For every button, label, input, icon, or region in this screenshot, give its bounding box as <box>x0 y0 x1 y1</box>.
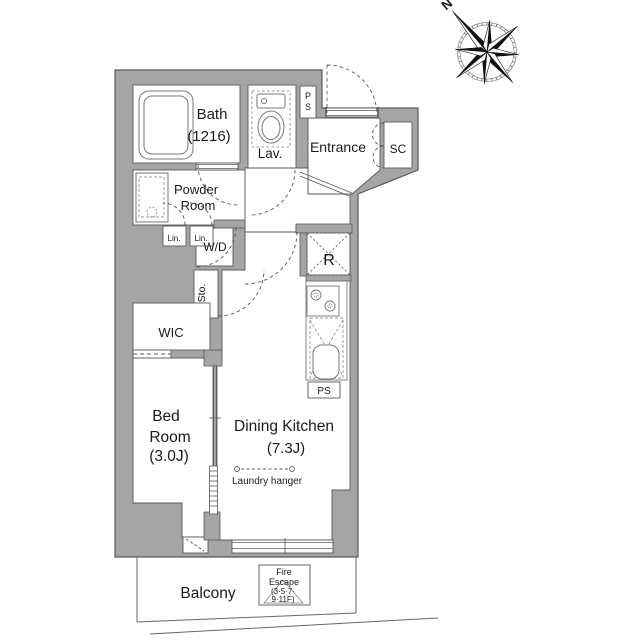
bedroom-label-2: Room <box>149 429 190 446</box>
bath-label: Bath <box>197 106 228 123</box>
washer-dryer-label: W/D <box>203 240 227 254</box>
storage-label: Sto. <box>196 284 208 303</box>
sliding-door-pocket <box>210 466 218 514</box>
dk-window <box>232 540 333 553</box>
laundry-hanger-label: Laundry hanger <box>232 476 303 487</box>
bath-size-label: (1216) <box>187 128 230 145</box>
wic-label: WIC <box>158 325 183 340</box>
floor-plan-canvas: N Bath (1216) Lav. P S Entrance SC Powde… <box>0 0 640 640</box>
ps-lower-label: PS <box>317 386 331 397</box>
linen-1-label: Lin. <box>168 234 181 243</box>
floor-plan: N Bath (1216) Lav. P S Entrance SC Powde… <box>0 0 640 640</box>
wall-below-fridge <box>306 275 351 281</box>
powder-room-label-1: Powder <box>174 182 219 197</box>
compass-rose-icon: N <box>411 0 543 108</box>
fire-escape-label-4: 9·11F) <box>272 595 295 604</box>
fire-escape-label-1: Fire <box>276 567 292 577</box>
wall-above-wd <box>214 220 245 228</box>
wic-opening <box>133 350 171 358</box>
ps-upper-letter-s: S <box>305 102 311 112</box>
dining-kitchen-label: Dining Kitchen <box>234 418 334 435</box>
fire-escape-label-2: Escape <box>269 577 299 587</box>
balcony-label: Balcony <box>180 585 235 602</box>
compass-star <box>422 0 544 108</box>
bedroom-label-1: Bed <box>152 408 180 425</box>
partition-top-stub <box>204 350 222 366</box>
bedroom-size-label: (3.0J) <box>149 448 189 465</box>
refrigerator-label: R <box>323 252 335 269</box>
lavatory-label: Lav. <box>258 146 283 161</box>
wall-above-fridge <box>296 224 352 233</box>
ps-upper-letter-p: P <box>305 91 311 101</box>
sink-icon <box>313 345 339 379</box>
dining-kitchen-size-label: (7.3J) <box>267 440 305 457</box>
entrance-label: Entrance <box>310 139 366 155</box>
partition-bottom-stub <box>204 512 220 540</box>
shoe-closet-label: SC <box>390 142 407 156</box>
powder-room-label-2: Room <box>181 198 216 213</box>
wall-left-of-fridge <box>300 233 307 276</box>
bath-door-threshold <box>196 163 238 170</box>
